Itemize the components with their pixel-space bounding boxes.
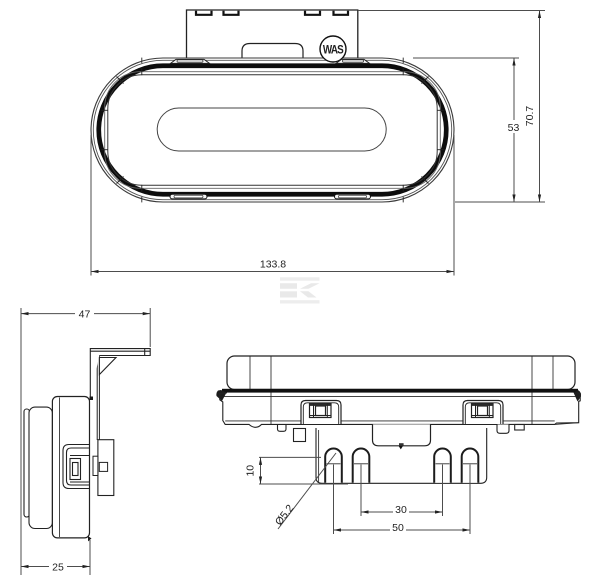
svg-text:50: 50	[392, 522, 404, 534]
svg-text:10: 10	[245, 465, 257, 477]
svg-text:70.7: 70.7	[524, 106, 536, 127]
svg-text:25: 25	[52, 561, 64, 573]
svg-text:47: 47	[79, 308, 91, 320]
svg-text:30: 30	[395, 504, 407, 516]
svg-text:WAS: WAS	[323, 44, 343, 57]
svg-text:133.8: 133.8	[260, 259, 286, 271]
svg-text:53: 53	[508, 122, 520, 134]
